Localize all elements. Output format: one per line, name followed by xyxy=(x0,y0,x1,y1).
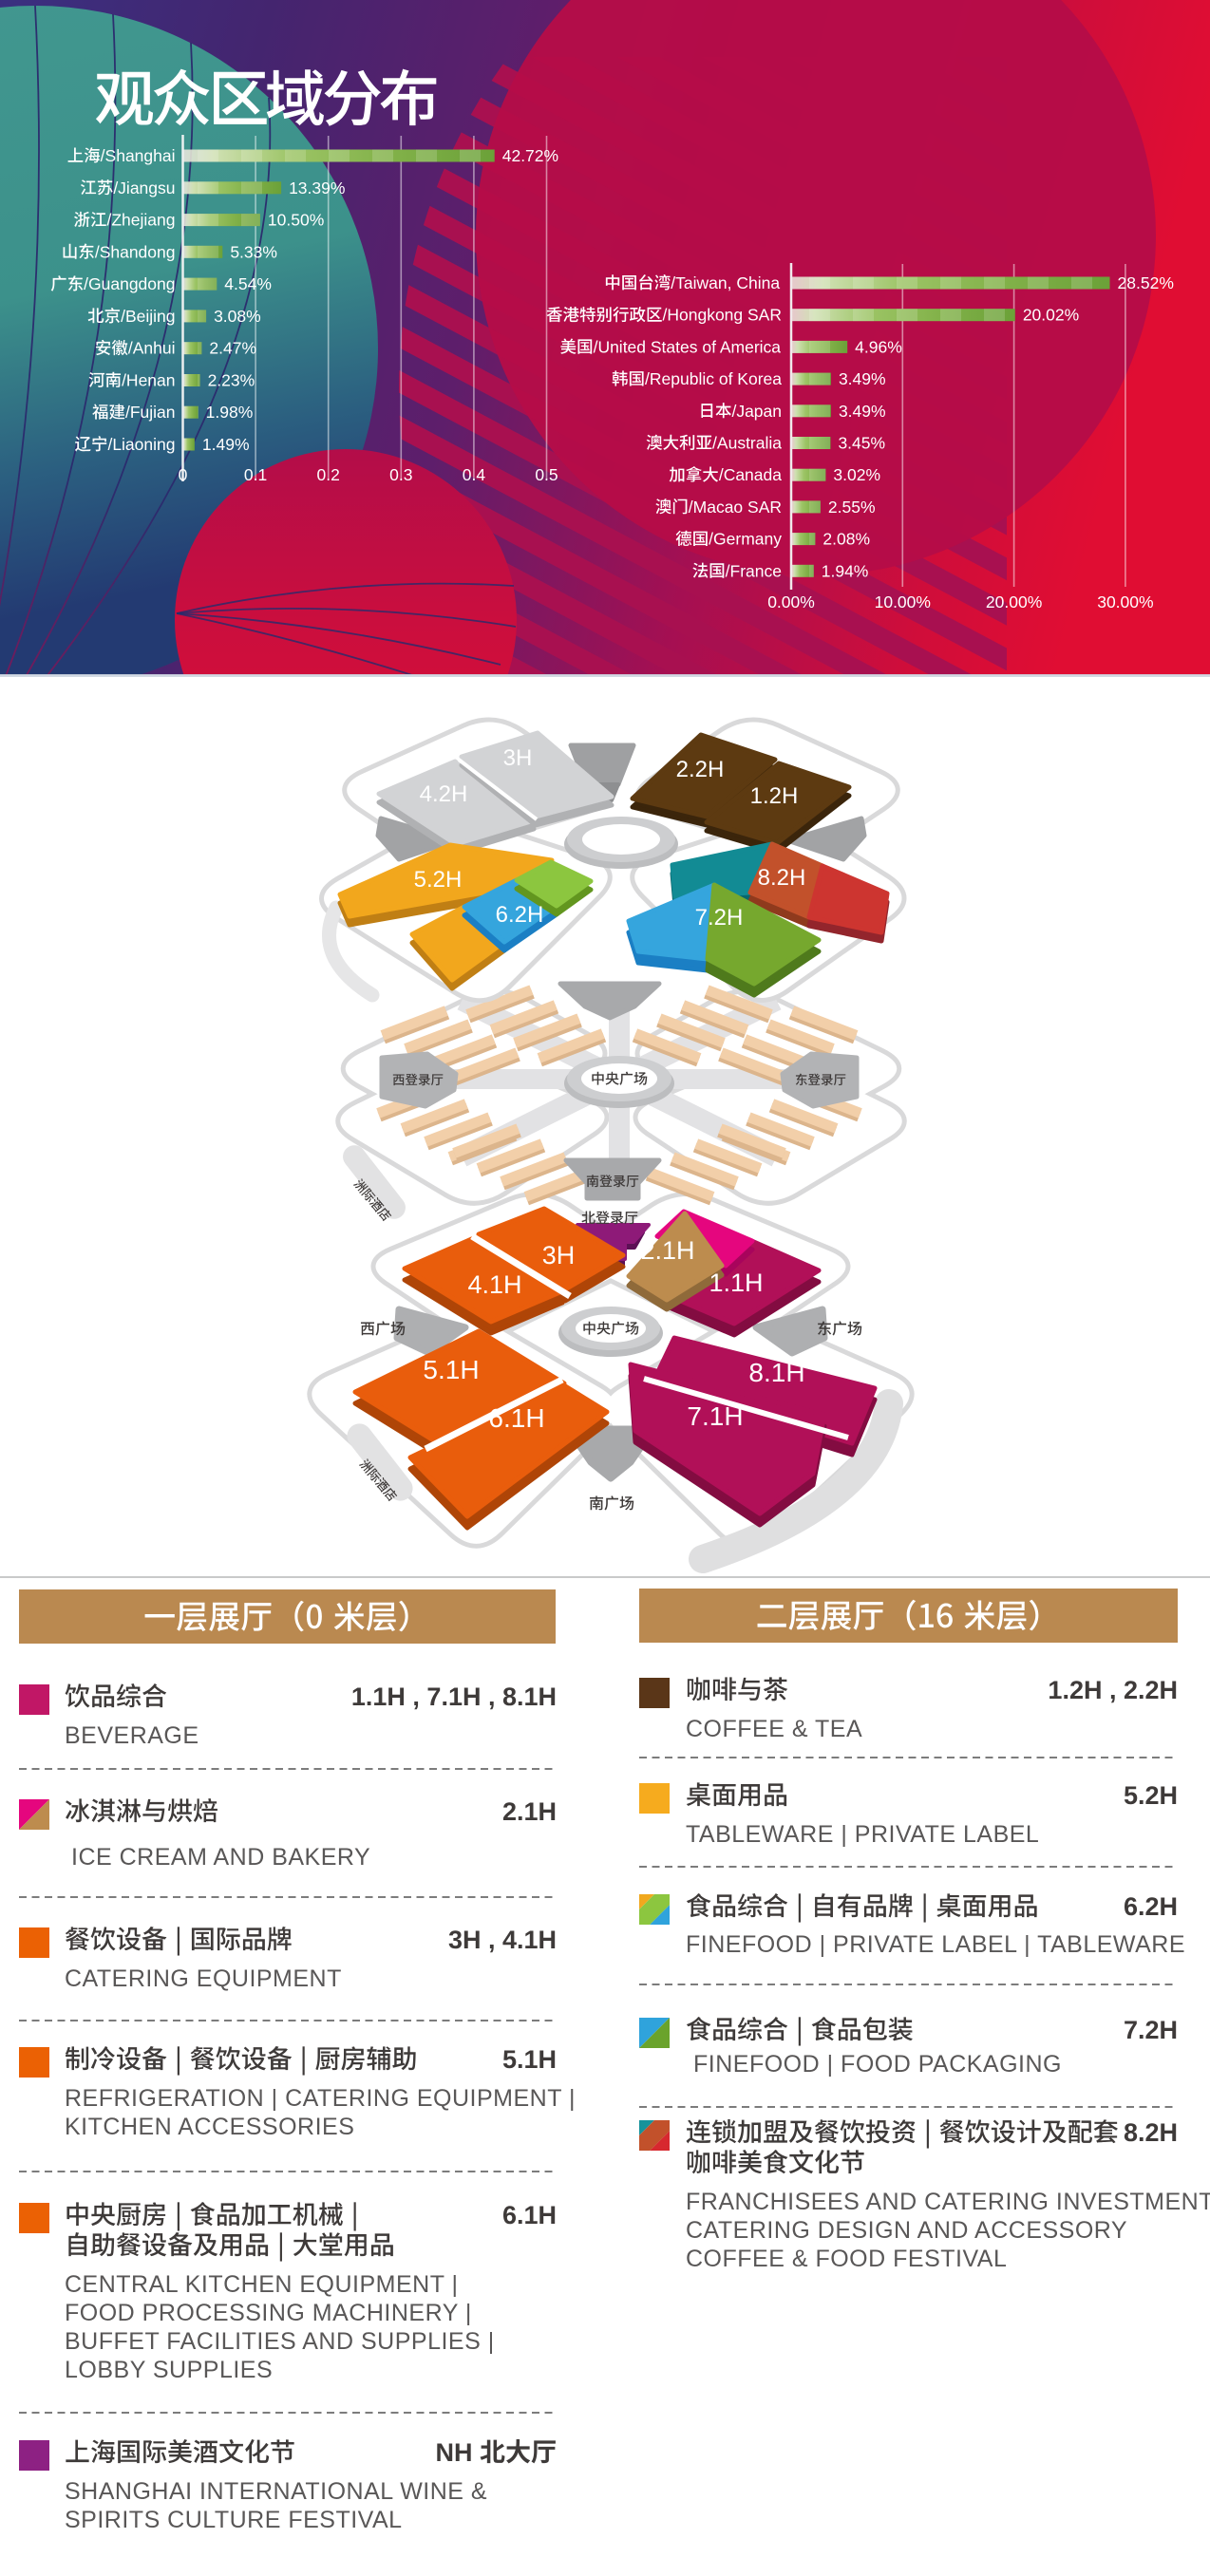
svg-text:FRANCHISEES AND CATERING INVES: FRANCHISEES AND CATERING INVESTMENT xyxy=(686,2189,1210,2215)
svg-text:42.72%: 42.72% xyxy=(502,146,558,165)
svg-text:0.2: 0.2 xyxy=(317,465,340,484)
svg-text:/Macao SAR: /Macao SAR xyxy=(689,498,782,517)
svg-text:/Henan: /Henan xyxy=(122,370,175,389)
svg-text:2.08%: 2.08% xyxy=(822,530,870,549)
svg-text:6.2H: 6.2H xyxy=(1124,1892,1178,1921)
svg-text:CATERING EQUIPMENT: CATERING EQUIPMENT xyxy=(65,1965,342,1992)
svg-text:20.00%: 20.00% xyxy=(986,592,1042,611)
svg-text:/Taiwan, China: /Taiwan, China xyxy=(671,273,780,292)
svg-text:4.2H: 4.2H xyxy=(420,781,468,807)
svg-text:/Zhejiang: /Zhejiang xyxy=(107,211,176,230)
svg-text:/Shandong: /Shandong xyxy=(95,242,176,261)
svg-text:SHANGHAI INTERNATIONAL WINE &: SHANGHAI INTERNATIONAL WINE & xyxy=(65,2478,487,2505)
svg-text:ICE CREAM AND BAKERY: ICE CREAM AND BAKERY xyxy=(71,1844,370,1871)
svg-text:NH: NH xyxy=(436,2438,473,2467)
svg-text:/Republic of Korea: /Republic of Korea xyxy=(645,369,782,388)
svg-text:LOBBY SUPPLIES: LOBBY SUPPLIES xyxy=(65,2357,273,2383)
svg-text:/Beijing: /Beijing xyxy=(121,307,175,326)
svg-text:5.1H: 5.1H xyxy=(423,1355,479,1384)
svg-text:8.1H: 8.1H xyxy=(748,1358,804,1387)
svg-text:10.50%: 10.50% xyxy=(268,211,324,230)
svg-text:8.2H: 8.2H xyxy=(1124,2118,1178,2147)
svg-text:1.2H: 1.2H xyxy=(750,783,799,809)
svg-text:1.1H: 1.1H xyxy=(709,1269,763,1297)
svg-text:/France: /France xyxy=(726,561,782,580)
svg-text:FINEFOOD | PRIVATE LABEL | TAB: FINEFOOD | PRIVATE LABEL | TABLEWARE xyxy=(686,1931,1185,1958)
svg-text:0: 0 xyxy=(179,465,188,484)
svg-text:30.00%: 30.00% xyxy=(1097,592,1153,611)
svg-text:1.1H , 7.1H , 8.1H: 1.1H , 7.1H , 8.1H xyxy=(351,1683,557,1711)
svg-text:COFFEE & TEA: COFFEE & TEA xyxy=(686,1716,862,1742)
svg-text:6.1H: 6.1H xyxy=(488,1403,544,1433)
svg-text:4.1H: 4.1H xyxy=(467,1270,521,1299)
svg-text:1.94%: 1.94% xyxy=(822,561,869,580)
svg-text:/Japan: /Japan xyxy=(731,402,782,421)
svg-text:7.2H: 7.2H xyxy=(695,905,744,931)
svg-text:0.4: 0.4 xyxy=(463,465,486,484)
svg-text:/United States of America: /United States of America xyxy=(594,337,782,356)
svg-text:3.08%: 3.08% xyxy=(214,307,261,326)
svg-text:/Germany: /Germany xyxy=(709,530,782,549)
svg-text:2.47%: 2.47% xyxy=(209,339,256,358)
svg-text:CATERING DESIGN AND ACCESSORY: CATERING DESIGN AND ACCESSORY xyxy=(686,2217,1127,2244)
svg-text:/Hongkong SAR: /Hongkong SAR xyxy=(663,306,783,325)
svg-text:3.49%: 3.49% xyxy=(839,369,886,388)
svg-text:3.49%: 3.49% xyxy=(839,402,886,421)
svg-text:10.00%: 10.00% xyxy=(875,592,931,611)
svg-text:6.1H: 6.1H xyxy=(502,2201,557,2229)
svg-text:BEVERAGE: BEVERAGE xyxy=(65,1722,199,1749)
svg-text:COFFEE & FOOD FESTIVAL: COFFEE & FOOD FESTIVAL xyxy=(686,2246,1007,2272)
svg-text:5.1H: 5.1H xyxy=(502,2045,557,2074)
svg-text:0.1: 0.1 xyxy=(244,465,267,484)
svg-text:2.1H: 2.1H xyxy=(502,1797,557,1826)
svg-text:BUFFET FACILITIES AND SUPPLIES: BUFFET FACILITIES AND SUPPLIES | xyxy=(65,2328,495,2355)
svg-text:8.2H: 8.2H xyxy=(758,865,806,891)
svg-text:TABLEWARE | PRIVATE LABEL: TABLEWARE | PRIVATE LABEL xyxy=(686,1821,1039,1848)
svg-text:0.5: 0.5 xyxy=(535,465,558,484)
svg-text:CENTRAL KITCHEN EQUIPMENT |: CENTRAL KITCHEN EQUIPMENT | xyxy=(65,2271,459,2298)
svg-text:1.49%: 1.49% xyxy=(202,435,250,454)
svg-text:FINEFOOD | FOOD PACKAGING: FINEFOOD | FOOD PACKAGING xyxy=(693,2051,1062,2078)
svg-text:/Australia: /Australia xyxy=(712,434,782,453)
svg-text:3.45%: 3.45% xyxy=(838,434,885,453)
svg-text:7.1H: 7.1H xyxy=(687,1401,743,1431)
svg-text:5.2H: 5.2H xyxy=(1124,1781,1178,1810)
svg-text:FOOD PROCESSING MACHINERY |: FOOD PROCESSING MACHINERY | xyxy=(65,2300,472,2326)
svg-text:1.2H , 2.2H: 1.2H , 2.2H xyxy=(1048,1676,1178,1704)
svg-text:5.33%: 5.33% xyxy=(230,242,277,261)
svg-text:2.1H: 2.1H xyxy=(640,1236,694,1265)
svg-text:1.98%: 1.98% xyxy=(206,403,254,422)
svg-text:4.54%: 4.54% xyxy=(224,274,272,293)
svg-text:3H: 3H xyxy=(503,745,533,771)
svg-text:4.96%: 4.96% xyxy=(855,337,902,356)
svg-text:20.02%: 20.02% xyxy=(1023,306,1079,325)
svg-text:6.2H: 6.2H xyxy=(496,902,544,928)
svg-text:28.52%: 28.52% xyxy=(1118,273,1174,292)
svg-text:2.23%: 2.23% xyxy=(208,370,255,389)
svg-text:/Guangdong: /Guangdong xyxy=(84,274,175,293)
svg-text:3H: 3H xyxy=(542,1241,576,1269)
svg-text:3H , 4.1H: 3H , 4.1H xyxy=(448,1926,557,1954)
svg-text:/Fujian: /Fujian xyxy=(125,403,176,422)
svg-text:/Anhui: /Anhui xyxy=(128,339,176,358)
svg-text:/Liaoning: /Liaoning xyxy=(107,435,175,454)
svg-text:/Canada: /Canada xyxy=(719,465,782,484)
svg-text:2.2H: 2.2H xyxy=(676,757,725,782)
svg-text:REFRIGERATION | CATERING EQUIP: REFRIGERATION | CATERING EQUIPMENT | xyxy=(65,2085,576,2112)
svg-text:5.2H: 5.2H xyxy=(414,867,463,893)
svg-text:SPIRITS CULTURE FESTIVAL: SPIRITS CULTURE FESTIVAL xyxy=(65,2507,403,2533)
svg-text:KITCHEN ACCESSORIES: KITCHEN ACCESSORIES xyxy=(65,2114,354,2140)
svg-text:/Shanghai: /Shanghai xyxy=(101,146,176,165)
svg-text:7.2H: 7.2H xyxy=(1124,2016,1178,2044)
svg-text:/Jiangsu: /Jiangsu xyxy=(113,179,175,197)
svg-text:3.02%: 3.02% xyxy=(833,465,880,484)
svg-text:0.00%: 0.00% xyxy=(767,592,815,611)
svg-text:13.39%: 13.39% xyxy=(289,179,345,197)
svg-text:0.3: 0.3 xyxy=(389,465,412,484)
svg-text:2.55%: 2.55% xyxy=(828,498,876,517)
